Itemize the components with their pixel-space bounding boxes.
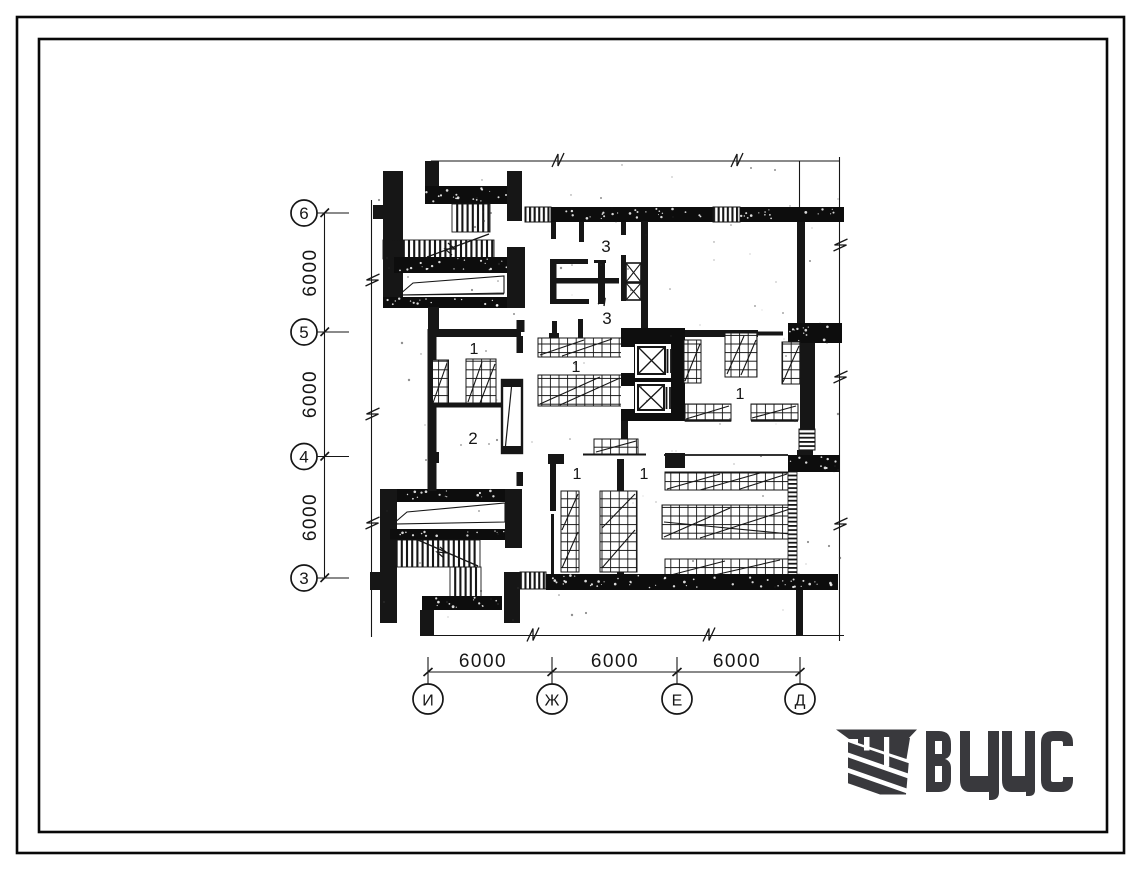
svg-text:1: 1 bbox=[470, 341, 479, 358]
svg-text:3: 3 bbox=[601, 237, 610, 256]
svg-text:3: 3 bbox=[602, 309, 611, 328]
svg-text:И: И bbox=[422, 693, 434, 710]
svg-text:5: 5 bbox=[299, 323, 308, 342]
svg-text:4: 4 bbox=[299, 448, 308, 467]
svg-text:3: 3 bbox=[299, 569, 308, 588]
svg-text:1: 1 bbox=[572, 359, 581, 376]
svg-text:Ж: Ж bbox=[545, 693, 560, 710]
svg-text:1: 1 bbox=[573, 466, 582, 483]
svg-text:6000: 6000 bbox=[459, 651, 507, 672]
svg-text:6000: 6000 bbox=[591, 651, 639, 672]
svg-text:2: 2 bbox=[468, 429, 477, 448]
svg-text:Д: Д bbox=[795, 693, 806, 710]
svg-text:6000: 6000 bbox=[713, 651, 761, 672]
svg-text:6: 6 bbox=[299, 204, 308, 223]
svg-text:1: 1 bbox=[640, 466, 649, 483]
svg-text:1: 1 bbox=[736, 386, 745, 403]
svg-text:6000: 6000 bbox=[300, 248, 321, 296]
svg-text:Е: Е bbox=[672, 693, 683, 710]
svg-text:6000: 6000 bbox=[300, 370, 321, 418]
svg-text:6000: 6000 bbox=[300, 493, 321, 541]
